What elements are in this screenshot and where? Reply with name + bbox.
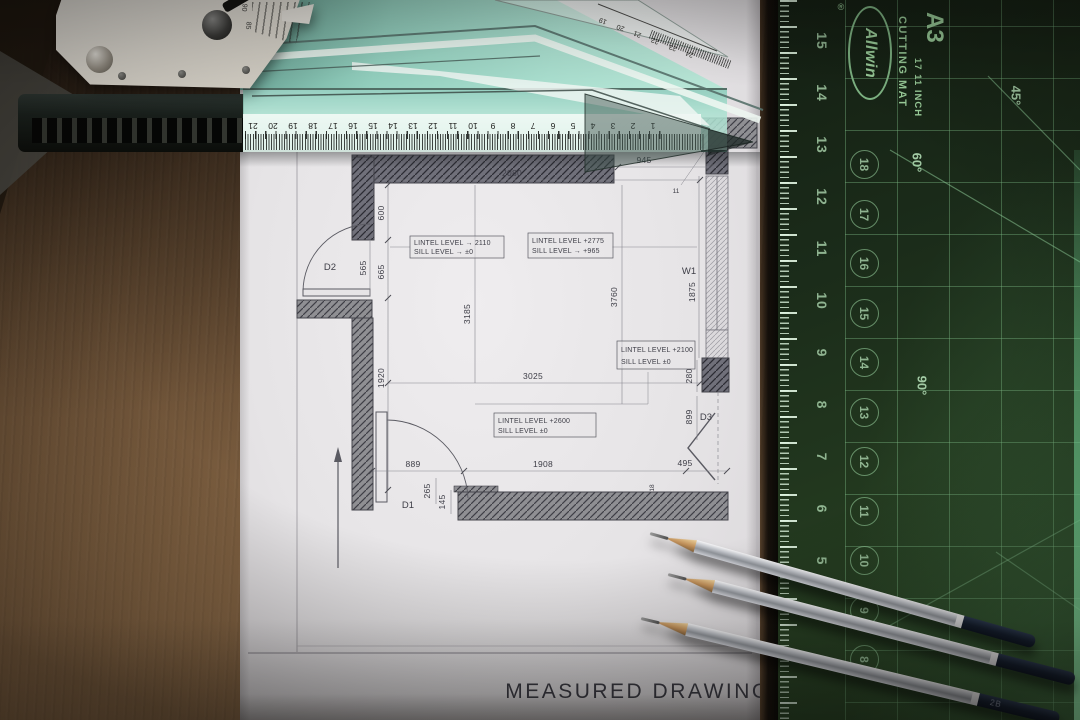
dim-left-c: 1920	[376, 368, 386, 388]
dim-left-b: 665	[376, 264, 386, 279]
dim-col: 280	[684, 368, 694, 383]
dim-bottom-l: 889	[405, 459, 420, 469]
clear-triangles	[240, 0, 780, 180]
dome-rivet	[86, 46, 113, 73]
lintel-2-line-2: SILL LEVEL → +965	[532, 248, 600, 255]
rivet	[242, 66, 250, 74]
dim-door2-w: 565	[358, 260, 368, 275]
lintel-1-line-2: SILL LEVEL → ±0	[414, 249, 473, 256]
plan-title: MEASURED DRAWING	[505, 680, 760, 703]
lintel-3-line-1: LINTEL LEVEL +2100	[621, 347, 693, 354]
photo-canvas: 2080 945 575 11 600 565 665 3185 1920 30…	[0, 0, 1080, 720]
dim-d3-h: 899	[684, 409, 694, 424]
dim-win-h: 1875	[687, 282, 697, 302]
lintel-texts: LINTEL LEVEL → 2110 SILL LEVEL → ±0 LINT…	[414, 238, 693, 435]
dim-mid-h: 3025	[523, 371, 543, 381]
dim-d3-w: 495	[677, 458, 692, 468]
dim-left-a: 600	[376, 205, 386, 220]
lintel-2-line-1: LINTEL LEVEL +2775	[532, 238, 604, 245]
dim-right-v: 3760	[609, 287, 619, 307]
pencil-lead-icon	[641, 617, 660, 624]
label-d3: D3	[700, 412, 712, 423]
lintel-3-line-2: SILL LEVEL ±0	[621, 359, 671, 366]
dim-marker: 11	[673, 188, 680, 195]
rivet	[178, 70, 186, 78]
dim-step-a: 265	[422, 483, 432, 498]
locking-knob	[202, 10, 232, 40]
label-d2: D2	[324, 262, 336, 273]
ruler-dark-end	[18, 94, 244, 152]
protractor-head: 90 85	[56, 0, 318, 100]
dim-step-b: 145	[437, 494, 447, 509]
lintel-4-line-1: LINTEL LEVEL +2600	[498, 418, 570, 425]
dim-bottom: 1908	[533, 459, 553, 469]
protractor-number-85: 85	[244, 21, 252, 29]
label-w1: W1	[682, 266, 696, 277]
dimension-ticks	[369, 164, 730, 493]
lintel-boxes	[410, 233, 695, 437]
lintel-4-line-2: SILL LEVEL ±0	[498, 428, 548, 435]
protractor-number-90: 90	[240, 3, 248, 11]
pencil-lead-icon	[650, 532, 669, 540]
pencil-grade-label: 2B	[989, 698, 1003, 710]
dim-step-c: 18	[649, 484, 656, 492]
dim-mid-v: 3185	[462, 304, 472, 324]
dimension-labels: 2080 945 575 11 600 565 665 3185 1920 30…	[324, 141, 712, 511]
pencil-lead-icon	[668, 573, 687, 580]
rivet	[118, 72, 126, 80]
mat-edge-glow	[1074, 150, 1080, 720]
label-d1: D1	[402, 500, 414, 511]
lintel-1-line-1: LINTEL LEVEL → 2110	[414, 240, 491, 247]
